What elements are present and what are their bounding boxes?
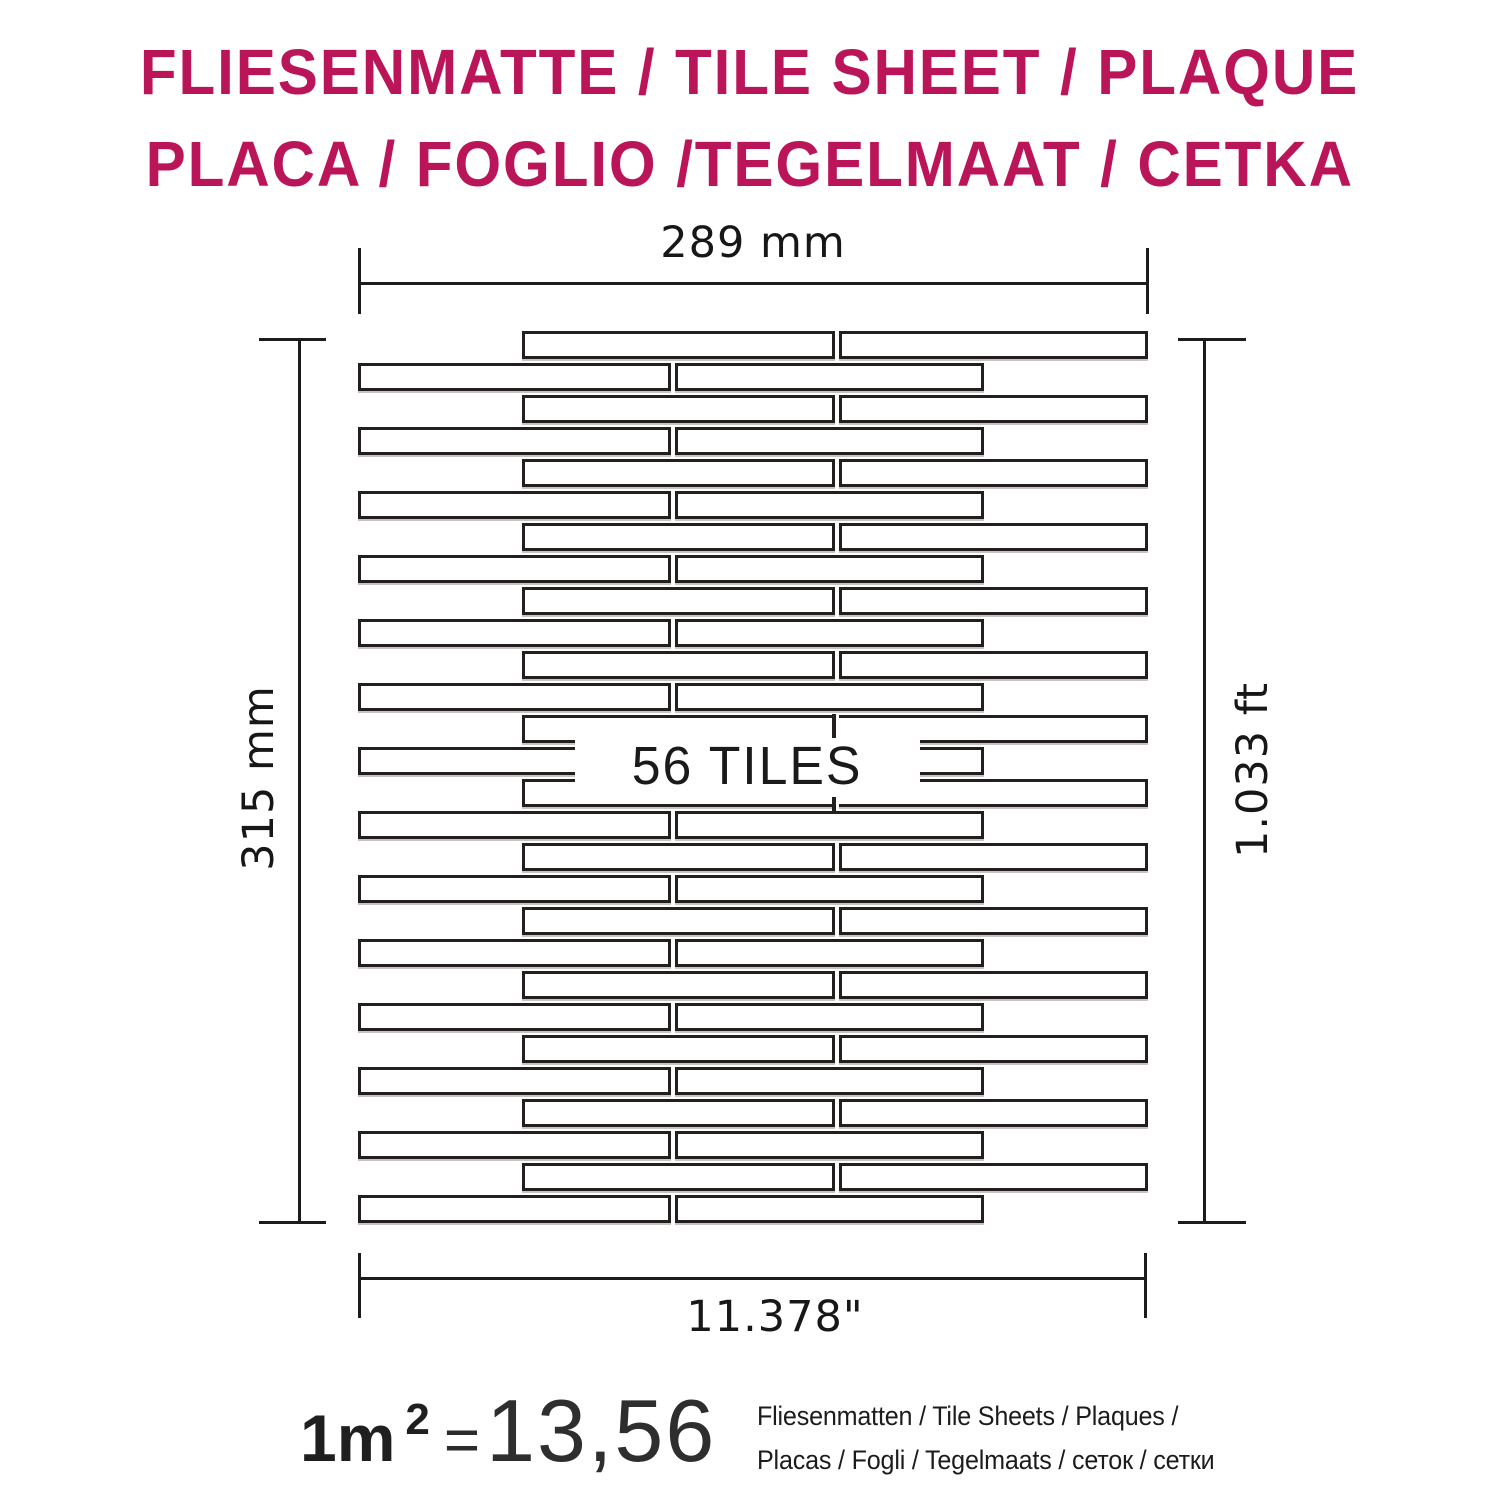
page-title: FLIESENMATTE / TILE SHEET / PLAQUE PLACA… bbox=[0, 26, 1500, 210]
tile bbox=[358, 1195, 671, 1223]
tile bbox=[839, 1099, 1148, 1127]
tile bbox=[358, 1003, 671, 1031]
dimension-tick-bottom-right bbox=[1144, 1253, 1147, 1318]
tile bbox=[358, 811, 671, 839]
tile bbox=[839, 1035, 1148, 1063]
tile bbox=[358, 1067, 671, 1095]
tile bbox=[522, 1035, 835, 1063]
tile bbox=[358, 1131, 671, 1159]
tile bbox=[522, 587, 835, 615]
tile bbox=[522, 395, 835, 423]
tile bbox=[675, 939, 984, 967]
tile bbox=[358, 491, 671, 519]
tile bbox=[675, 363, 984, 391]
tile bbox=[675, 427, 984, 455]
dimension-tick-left-bottom bbox=[259, 1221, 326, 1224]
tile bbox=[839, 843, 1148, 871]
tile bbox=[839, 907, 1148, 935]
tile bbox=[839, 523, 1148, 551]
tile bbox=[675, 555, 984, 583]
tile bbox=[839, 331, 1148, 359]
tile bbox=[675, 1195, 984, 1223]
tile bbox=[675, 491, 984, 519]
tile bbox=[675, 683, 984, 711]
dimension-tick-top-right bbox=[1146, 248, 1149, 314]
dimension-tick-bottom-left bbox=[358, 1253, 361, 1318]
dimension-tick-left-top bbox=[259, 338, 326, 341]
tile bbox=[522, 651, 835, 679]
tile bbox=[522, 331, 835, 359]
tile-junction-tick-top bbox=[832, 714, 836, 738]
dimension-line-left bbox=[298, 339, 301, 1223]
title-line-2: PLACA / FOGLIO /TEGELMAAT / CETKA bbox=[0, 118, 1500, 210]
tile bbox=[358, 683, 671, 711]
tile bbox=[839, 459, 1148, 487]
tile bbox=[358, 875, 671, 903]
tile bbox=[675, 875, 984, 903]
dimension-line-right bbox=[1203, 339, 1206, 1223]
tile-count-label-box: 56 TILES bbox=[575, 718, 920, 804]
tile bbox=[839, 587, 1148, 615]
dimension-tick-right-bottom bbox=[1178, 1221, 1246, 1224]
tile bbox=[522, 843, 835, 871]
area-value: 1m bbox=[300, 1400, 395, 1476]
dimension-tick-right-top bbox=[1178, 338, 1246, 341]
coverage-description-line-2: Placas / Fogli / Tegelmaats / сеток / се… bbox=[757, 1438, 1215, 1482]
tile bbox=[358, 427, 671, 455]
tile bbox=[839, 395, 1148, 423]
dimension-label-width-metric: 289 mm bbox=[553, 218, 953, 268]
dimension-label-height-imperial: 1.033 ft bbox=[1228, 620, 1272, 920]
coverage-equation: 1m2=13,56 bbox=[300, 1380, 716, 1482]
tile bbox=[522, 907, 835, 935]
area-exponent: 2 bbox=[405, 1395, 429, 1445]
tile bbox=[358, 939, 671, 967]
tile bbox=[358, 619, 671, 647]
tile bbox=[522, 523, 835, 551]
tile bbox=[839, 1163, 1148, 1191]
tile-sheet-spec-diagram: FLIESENMATTE / TILE SHEET / PLAQUE PLACA… bbox=[0, 0, 1500, 1500]
tile bbox=[675, 619, 984, 647]
sheets-per-sqm-value: 13,56 bbox=[486, 1380, 716, 1482]
tile bbox=[839, 651, 1148, 679]
coverage-description: Fliesenmatten / Tile Sheets / Plaques / … bbox=[757, 1394, 1249, 1482]
tile bbox=[839, 971, 1148, 999]
equals-sign: = bbox=[444, 1405, 480, 1476]
tile bbox=[522, 971, 835, 999]
dimension-line-top bbox=[360, 282, 1148, 285]
dimension-label-width-imperial: 11.378" bbox=[575, 1292, 975, 1342]
tile bbox=[675, 1003, 984, 1031]
tile bbox=[675, 1067, 984, 1095]
tile-junction-tick-bottom bbox=[832, 797, 836, 813]
tile bbox=[522, 1163, 835, 1191]
tile bbox=[358, 363, 671, 391]
tile bbox=[675, 1131, 984, 1159]
coverage-description-line-1: Fliesenmatten / Tile Sheets / Plaques / bbox=[757, 1394, 1215, 1438]
dimension-tick-top-left bbox=[358, 248, 361, 314]
title-line-1: FLIESENMATTE / TILE SHEET / PLAQUE bbox=[0, 26, 1500, 118]
dimension-label-height-metric: 315 mm bbox=[234, 628, 278, 928]
tile bbox=[675, 811, 984, 839]
tile bbox=[522, 459, 835, 487]
tile bbox=[358, 555, 671, 583]
tile-count-label: 56 TILES bbox=[632, 735, 863, 797]
dimension-line-bottom bbox=[360, 1277, 1147, 1280]
tile bbox=[522, 1099, 835, 1127]
